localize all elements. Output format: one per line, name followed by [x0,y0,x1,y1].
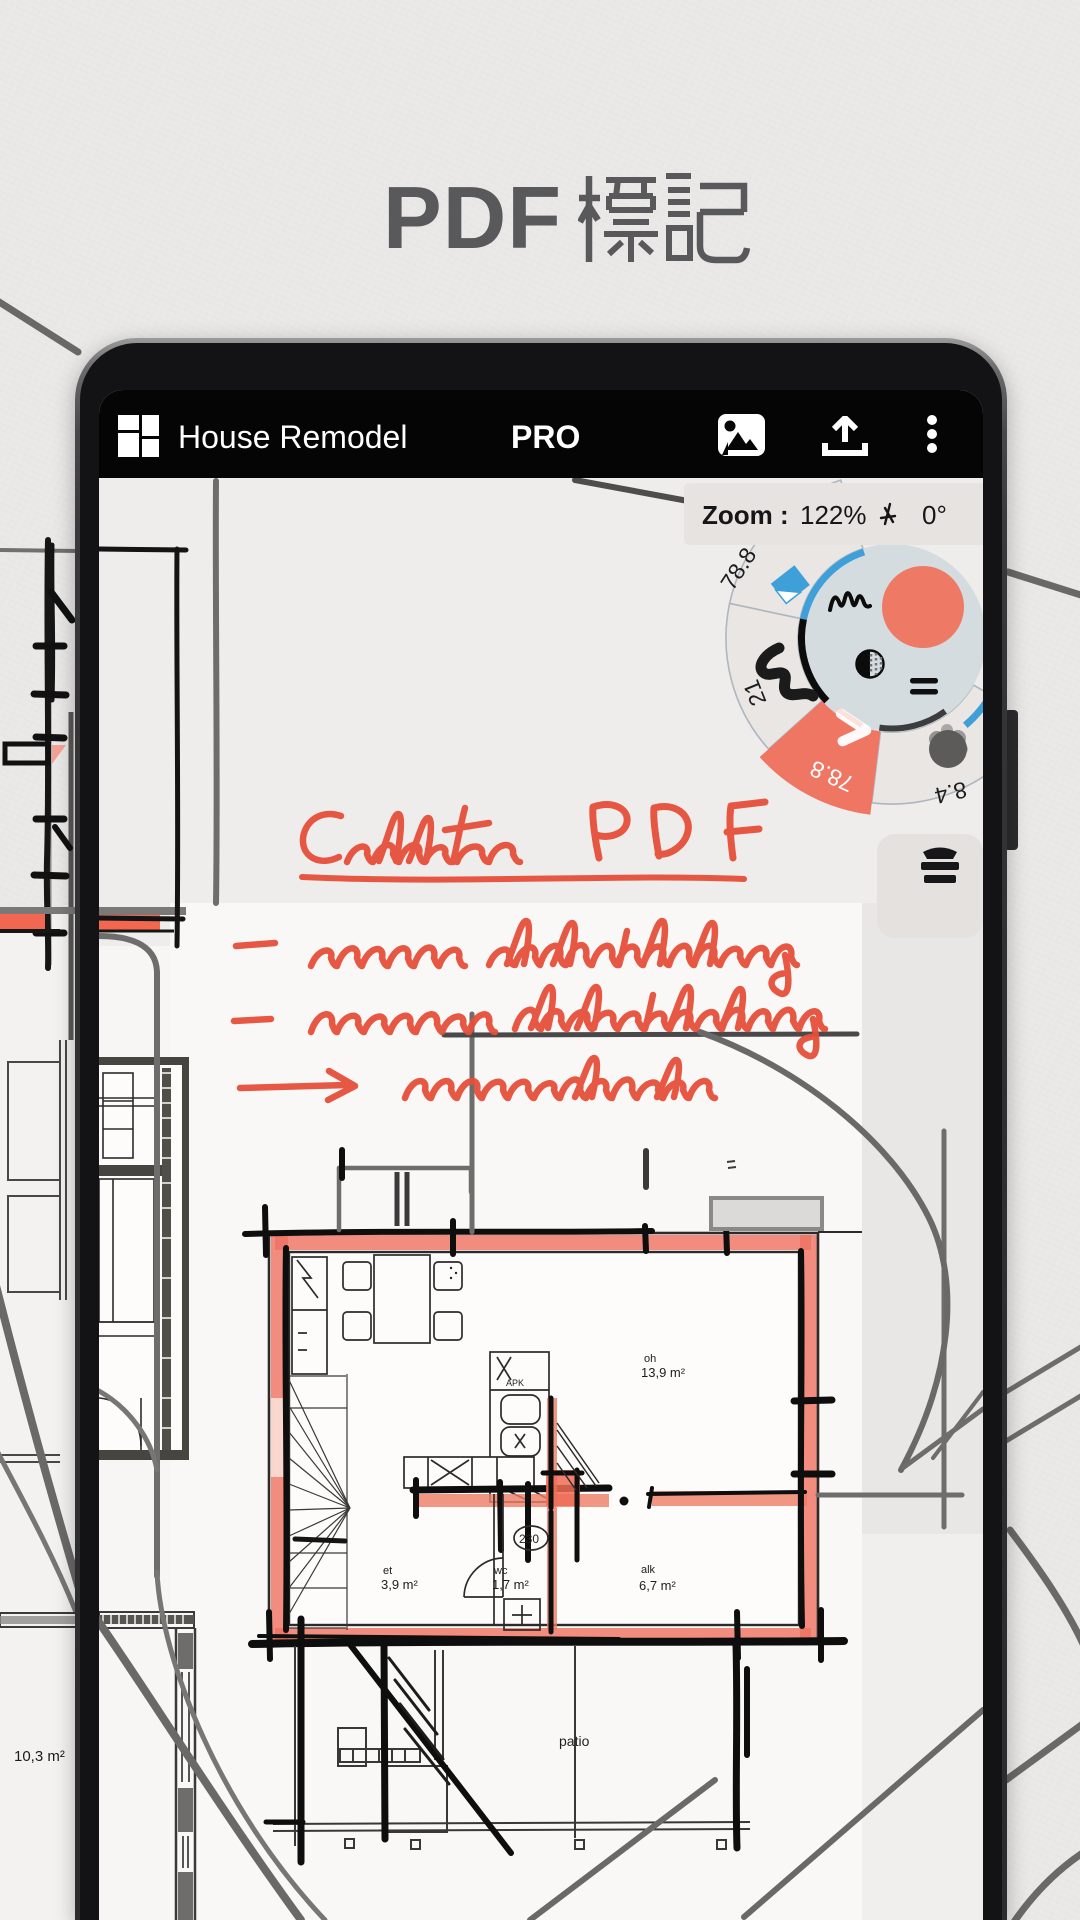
svg-text:0°: 0° [922,500,947,530]
svg-text:oh: oh [644,1353,656,1365]
svg-text:230: 230 [519,1532,539,1546]
svg-text:et: et [383,1565,392,1577]
svg-text:wc: wc [493,1565,508,1577]
svg-text:APK: APK [506,1378,524,1388]
svg-text:Zoom :: Zoom : [702,500,789,530]
svg-text:13,9 m²: 13,9 m² [641,1365,686,1380]
svg-text:alk: alk [641,1564,656,1576]
svg-text:1,7 m²: 1,7 m² [492,1577,530,1592]
svg-text:6,7 m²: 6,7 m² [639,1578,677,1593]
svg-text:patio: patio [559,1733,590,1749]
svg-text:10,3 m²: 10,3 m² [14,1748,65,1765]
svg-text:3,9 m²: 3,9 m² [381,1577,419,1592]
svg-text:122%: 122% [800,500,867,530]
